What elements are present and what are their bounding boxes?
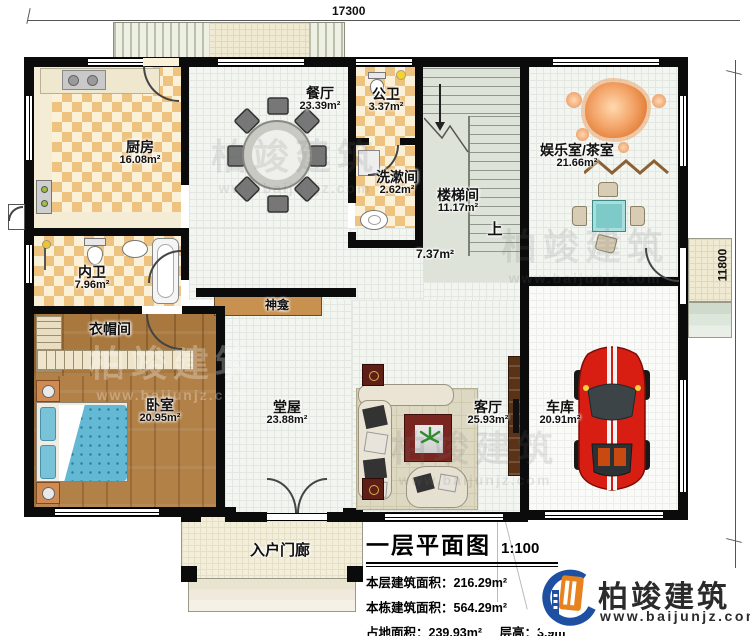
wall-stairs-tea: [520, 57, 529, 286]
pillow: [40, 407, 56, 441]
stairs-treads-top: [423, 68, 520, 116]
room-label-inner-bath: 内卫 7.96m²: [42, 265, 142, 291]
floor-plan-sheet: 17300 11800 2000 入户门廊: [0, 0, 750, 636]
sofa-pillow: [363, 458, 387, 481]
brand-logo-mark: [540, 568, 596, 630]
shower-head: [396, 70, 406, 80]
tea-table: [592, 200, 626, 232]
brand-logo: 柏竣建筑 www.baijunjz.com: [540, 568, 750, 632]
wall-bath-divider-a: [355, 138, 369, 145]
window-tea-top: [553, 58, 659, 66]
tea-chair: [630, 206, 645, 226]
room-label-hall: 堂屋 23.88m²: [237, 400, 337, 426]
appliance-knob: [41, 186, 48, 193]
dim-tick-right: [726, 70, 742, 75]
stairs-break-line: [424, 112, 470, 156]
top-terrace-rail-left: [114, 23, 209, 58]
dim-line-right: [735, 60, 736, 535]
wall-hall-front-left: [225, 512, 267, 522]
window-dining-top: [218, 58, 304, 66]
room-label-public-bath: 公卫 3.37m²: [336, 87, 436, 113]
window-living-bottom: [385, 513, 503, 521]
dining-table-set: [222, 96, 332, 214]
window-bedroom-bottom: [55, 508, 159, 516]
rug-dot: [576, 128, 589, 141]
window-innerbath-left: [25, 245, 33, 283]
dim-tick-bottom-right: [726, 538, 742, 543]
wall-bedroom-right: [216, 306, 225, 517]
rug-dot: [566, 92, 582, 108]
wall-wash-stairs: [415, 57, 423, 248]
basin-inner: [368, 215, 381, 225]
porch-post: [347, 566, 363, 582]
opening-kitchen-door: [143, 58, 179, 66]
toilet-tank: [368, 72, 386, 79]
corridor-floor-b: [423, 282, 520, 302]
stove-burner: [87, 75, 98, 86]
label-corridor-area: 7.37m²: [385, 248, 485, 261]
sofa-pillow: [362, 405, 388, 429]
nightstand: [36, 482, 60, 504]
lamp: [42, 385, 55, 398]
porch-post: [181, 566, 197, 582]
window-garage-right: [679, 380, 687, 492]
end-table: [362, 364, 384, 386]
label-stairs-up: 上: [470, 222, 520, 238]
plant: [418, 426, 442, 450]
sofa-pillow: [438, 474, 459, 493]
room-label-kitchen: 厨房 16.08m²: [90, 140, 190, 166]
room-label-bedroom: 卧室 20.95m²: [110, 398, 210, 424]
wall-kitchen-bottom: [24, 228, 189, 236]
top-terrace: [113, 22, 345, 59]
wall-innerbath-right: [181, 228, 189, 280]
kitchen-appliance: [36, 180, 52, 214]
title-underline-2: [366, 566, 558, 567]
brand-url: www.baijunjz.com: [600, 608, 750, 626]
lounge-sofa: [406, 466, 468, 508]
nightstand: [36, 380, 60, 402]
opening-tea-side-door: [679, 248, 687, 304]
garage-door: [545, 511, 663, 519]
title-underline: [366, 562, 558, 564]
sheet-fold: [59, 405, 85, 481]
entry-porch-steps: [188, 578, 356, 612]
lamp: [42, 487, 55, 500]
cloak-rack-bottom: [36, 350, 194, 370]
wall-wash-bottom: [348, 240, 423, 248]
room-label-shrine: 神龛: [227, 299, 327, 312]
appliance-knob: [41, 200, 48, 207]
wall-shrine: [196, 288, 356, 297]
dim-top-label: 17300: [332, 4, 365, 18]
room-label-entry-porch: 入户门廊: [225, 543, 335, 559]
window-tea-right: [679, 96, 687, 166]
tea-chair: [572, 206, 587, 226]
kitchen-stove: [62, 70, 106, 90]
window-kitchen-left: [25, 96, 33, 160]
entry-porch-name: 入户门廊: [225, 543, 335, 559]
rug-dot: [652, 94, 666, 108]
dim-line-top: [28, 20, 740, 21]
end-table-decor: [369, 485, 379, 495]
toilet-bowl: [87, 246, 103, 265]
sofa-pillow: [413, 473, 435, 493]
room-label-garage: 车库 20.91m²: [510, 400, 610, 426]
sofa-pillow: [364, 431, 389, 454]
wash-basin: [122, 240, 148, 258]
dim-right-label: 11800: [715, 249, 729, 282]
window-bath-top: [356, 58, 412, 66]
toilet-tank: [84, 238, 106, 246]
wall-innerbath-bottom-a: [24, 306, 142, 314]
toilet: [84, 238, 106, 266]
wall-garage-left: [520, 277, 529, 520]
room-label-cloakroom: 衣帽间: [60, 322, 160, 337]
side-porch-steps: [688, 302, 732, 338]
room-label-tea-room: 娱乐室/茶室 21.66m²: [527, 143, 627, 169]
plan-title: 一层平面图: [366, 526, 491, 560]
opening-hall-door: [267, 513, 327, 521]
room-label-stairwell: 楼梯间 11.17m²: [408, 188, 508, 214]
end-table-decor: [369, 371, 379, 381]
pillow: [40, 445, 56, 479]
top-terrace-deck: [209, 23, 309, 58]
plan-scale: 1:100: [501, 540, 539, 557]
end-table: [362, 478, 384, 500]
tea-chair: [598, 182, 618, 197]
top-terrace-rail-right: [309, 23, 346, 58]
stove-burner: [68, 75, 79, 86]
wash-basin: [360, 210, 388, 230]
dim-tick-top-left: [26, 8, 30, 24]
